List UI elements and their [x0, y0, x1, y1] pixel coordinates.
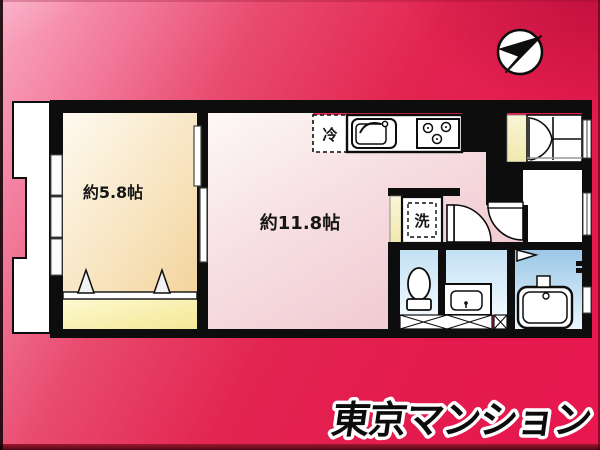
sink-faucet	[382, 121, 387, 126]
sanitary-area	[388, 242, 584, 329]
wall-bottom	[50, 329, 592, 338]
toilet	[407, 268, 431, 310]
hallway-floor	[523, 170, 582, 242]
bedroom-size-label: 約5.8帖	[83, 183, 143, 202]
pipe-space	[494, 315, 507, 329]
bedroom: 約5.8帖	[51, 113, 207, 329]
hatched-strip	[400, 315, 492, 329]
compass-icon	[498, 30, 542, 74]
bedroom-closet-floor	[63, 299, 197, 329]
refrigerator-label: 冷	[322, 126, 337, 144]
bath-faucet	[537, 276, 550, 287]
balcony	[13, 102, 50, 333]
wall-sanitary-top	[388, 242, 582, 250]
floorplan-page: 約5.8帖 約11.8帖 冷	[0, 0, 600, 450]
wall-faucet-knob	[576, 261, 584, 266]
nook-floor-strip	[390, 196, 402, 243]
stove	[417, 119, 459, 148]
wall-sanitary-left	[388, 242, 400, 329]
bedroom-floor	[63, 113, 197, 297]
bottom-edge-strip	[0, 444, 600, 450]
ldk-size-label: 約11.8帖	[260, 212, 340, 234]
wall-block	[462, 113, 507, 152]
wall-faucet-knob	[576, 268, 584, 273]
brand-logo-text: 東京マンション	[329, 399, 594, 443]
floorplan-drawing: 約5.8帖 約11.8帖 冷	[0, 0, 600, 450]
wall-block	[505, 162, 525, 205]
wall-divider	[507, 250, 515, 329]
washroom-door-leaf	[447, 205, 454, 242]
wall-block	[486, 152, 507, 205]
wall-nook-top	[388, 188, 460, 196]
hallway-door-leaf	[488, 202, 523, 208]
wall-top	[50, 100, 592, 113]
balcony-window	[51, 155, 62, 275]
kitchen-sink	[352, 119, 396, 148]
closet-floor-strip	[507, 115, 527, 162]
washing-machine-label: 洗	[414, 212, 429, 230]
washbasin-vanity	[444, 284, 491, 315]
